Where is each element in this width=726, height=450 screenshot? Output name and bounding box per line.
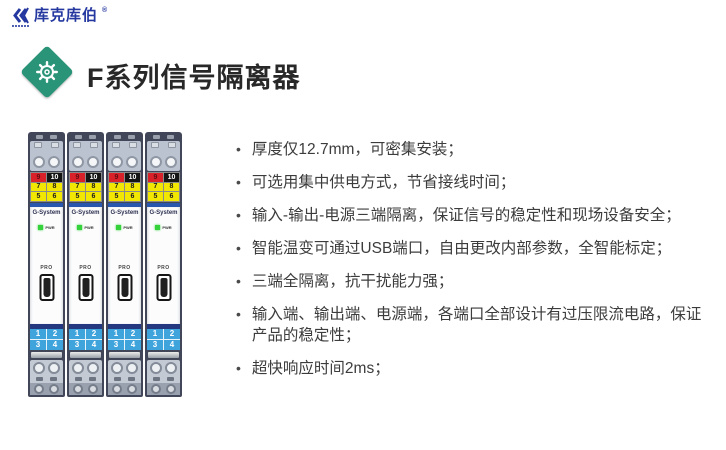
terminal-7: 7: [148, 183, 163, 192]
usb-port-icon: [117, 274, 132, 301]
brand-label: G-System: [108, 210, 141, 216]
screw-icon: [153, 135, 160, 139]
isolator-module: 9 10 7 8 5 6 G-System PWR PRO 1 2: [28, 132, 65, 397]
feature-item: • 超快响应时间2ms；: [236, 358, 714, 379]
screw-slot-icon: [50, 377, 57, 381]
screw-icon: [50, 135, 57, 139]
feature-text: 可选用集中供电方式，节省接线时间；: [252, 172, 516, 193]
terminal-6: 6: [47, 192, 62, 201]
screw-icon: [114, 135, 121, 139]
top-terminal-block: [108, 141, 141, 171]
din-clip-icon: [70, 352, 101, 358]
terminal-10: 10: [86, 173, 101, 182]
power-indicator: PWR: [108, 225, 141, 230]
brand-logo: 库克库伯 ®: [12, 7, 107, 27]
feature-item: • 智能温变可通过USB端口，自由更改内部参数，全智能标定；: [236, 238, 714, 259]
terminal-7: 7: [31, 183, 46, 192]
logo-subtext: [12, 25, 29, 27]
wire-hole-icon: [150, 156, 162, 168]
wire-hole-icon: [165, 362, 177, 374]
brand-label: G-System: [30, 210, 63, 216]
terminal-10: 10: [47, 173, 62, 182]
wire-hole-icon: [166, 384, 176, 394]
terminal-2: 2: [47, 329, 63, 339]
usb-port-icon: [156, 274, 171, 301]
brand-label: G-System: [147, 210, 180, 216]
feature-text: 厚度仅12.7mm，可密集安装；: [252, 139, 463, 160]
bottom-terminal-block: [69, 360, 102, 395]
terminal-3: 3: [108, 340, 124, 350]
pwr-label: PWR: [84, 225, 93, 230]
pro-label: PRO: [30, 265, 63, 271]
terminal-number-grid-top: 9 10 7 8 5 6: [30, 172, 63, 202]
wire-hole-icon: [126, 362, 138, 374]
terminal-9: 9: [148, 173, 163, 182]
terminal-5: 5: [148, 192, 163, 201]
terminal-5: 5: [109, 192, 124, 201]
logo-text: 库克库伯: [34, 7, 98, 24]
registered-mark: ®: [102, 7, 107, 15]
feature-list: • 厚度仅12.7mm，可密集安装； • 可选用集中供电方式，节省接线时间； •…: [236, 139, 714, 391]
bottom-terminal-housing: [145, 351, 182, 397]
screw-icon: [89, 135, 96, 139]
top-terminal-block: [147, 141, 180, 171]
terminal-1: 1: [69, 329, 85, 339]
terminal-9: 9: [109, 173, 124, 182]
wire-hole-icon: [111, 156, 123, 168]
bottom-terminal-block: [147, 360, 180, 395]
wire-hole-icon: [72, 362, 84, 374]
bullet-icon: •: [236, 358, 241, 379]
top-terminal-block: [30, 141, 63, 171]
terminal-number-grid-top: 9 10 7 8 5 6: [108, 172, 141, 202]
feature-text: 三端全隔离，抗干扰能力强；: [252, 271, 454, 292]
terminal-1: 1: [30, 329, 46, 339]
terminal-1: 1: [108, 329, 124, 339]
lower-terminal-row: [147, 383, 180, 395]
bottom-terminal-housing: [67, 351, 104, 397]
power-indicator: PWR: [69, 225, 102, 230]
feature-text: 输入端、输出端、电源端，各端口全部设计有过压限流电路，保证产品的稳定性；: [252, 304, 714, 346]
bullet-icon: •: [236, 238, 241, 259]
slide: 库克库伯 ® F系列信号隔离器: [0, 0, 726, 450]
screw-slot-icon: [153, 377, 160, 381]
bullet-icon: •: [236, 172, 241, 193]
wire-hole-icon: [72, 156, 84, 168]
wire-hole-icon: [127, 384, 137, 394]
bottom-terminal-housing: [28, 351, 65, 397]
terminal-6: 6: [164, 192, 179, 201]
terminal-2: 2: [164, 329, 180, 339]
wire-hole-icon: [88, 384, 98, 394]
terminal-screw-icon: [129, 142, 137, 148]
lower-terminal-row: [30, 383, 63, 395]
feature-item: • 可选用集中供电方式，节省接线时间；: [236, 172, 714, 193]
terminal-number-grid-top: 9 10 7 8 5 6: [147, 172, 180, 202]
terminal-screw-icon: [168, 142, 176, 148]
wire-hole-icon: [33, 156, 45, 168]
wire-hole-icon: [34, 384, 44, 394]
wire-hole-icon: [151, 384, 161, 394]
pro-label: PRO: [147, 265, 180, 271]
module-faceplate: G-System PWR PRO: [147, 207, 180, 325]
wire-hole-icon: [73, 384, 83, 394]
bottom-terminal-block: [108, 360, 141, 395]
din-clip-icon: [31, 352, 62, 358]
terminal-7: 7: [109, 183, 124, 192]
wire-hole-icon: [150, 362, 162, 374]
terminal-screw-icon: [51, 142, 59, 148]
terminal-1: 1: [147, 329, 163, 339]
terminal-4: 4: [86, 340, 102, 350]
screw-icon: [75, 135, 82, 139]
page-title: F系列信号隔离器: [87, 56, 301, 95]
pwr-led-icon: [155, 225, 160, 230]
terminal-number-grid-bottom: 1 2 3 4: [30, 329, 63, 350]
screw-icon: [128, 135, 135, 139]
screw-slot-icon: [128, 377, 135, 381]
terminal-4: 4: [164, 340, 180, 350]
bottom-terminal-housing: [106, 351, 143, 397]
terminal-6: 6: [86, 192, 101, 201]
feature-item: • 输入端、输出端、电源端，各端口全部设计有过压限流电路，保证产品的稳定性；: [236, 304, 714, 346]
wire-hole-icon: [87, 362, 99, 374]
pwr-label: PWR: [45, 225, 54, 230]
terminal-8: 8: [47, 183, 62, 192]
terminal-5: 5: [70, 192, 85, 201]
screw-slot-icon: [114, 377, 121, 381]
usb-port-icon: [78, 274, 93, 301]
terminal-10: 10: [125, 173, 140, 182]
module-faceplate: G-System PWR PRO: [30, 207, 63, 325]
top-screws: [106, 132, 143, 141]
terminal-number-grid-top: 9 10 7 8 5 6: [69, 172, 102, 202]
feature-item: • 三端全隔离，抗干扰能力强；: [236, 271, 714, 292]
title-diamond: [20, 45, 74, 99]
terminal-4: 4: [47, 340, 63, 350]
terminal-4: 4: [125, 340, 141, 350]
terminal-5: 5: [31, 192, 46, 201]
screw-slot-icon: [167, 377, 174, 381]
top-screws: [67, 132, 104, 141]
feature-text: 超快响应时间2ms；: [252, 358, 390, 379]
usb-port-icon: [39, 274, 54, 301]
terminal-number-grid-bottom: 1 2 3 4: [147, 329, 180, 350]
terminal-8: 8: [125, 183, 140, 192]
feature-item: • 厚度仅12.7mm，可密集安装；: [236, 139, 714, 160]
pwr-label: PWR: [123, 225, 132, 230]
pwr-led-icon: [77, 225, 82, 230]
screw-icon: [36, 135, 43, 139]
pro-label: PRO: [108, 265, 141, 271]
bullet-icon: •: [236, 205, 241, 226]
bullet-icon: •: [236, 304, 241, 346]
din-clip-icon: [109, 352, 140, 358]
terminal-8: 8: [86, 183, 101, 192]
terminal-8: 8: [164, 183, 179, 192]
lower-terminal-row: [69, 383, 102, 395]
feature-text: 智能温变可通过USB端口，自由更改内部参数，全智能标定；: [252, 238, 671, 259]
pwr-label: PWR: [162, 225, 171, 230]
wire-hole-icon: [87, 156, 99, 168]
wire-hole-icon: [49, 384, 59, 394]
terminal-screw-icon: [90, 142, 98, 148]
wire-hole-icon: [48, 362, 60, 374]
terminal-number-grid-bottom: 1 2 3 4: [108, 329, 141, 350]
screw-icon: [167, 135, 174, 139]
power-indicator: PWR: [147, 225, 180, 230]
terminal-screw-icon: [151, 142, 159, 148]
isolator-module: 9 10 7 8 5 6 G-System PWR PRO 1 2: [67, 132, 104, 397]
terminal-10: 10: [164, 173, 179, 182]
pwr-led-icon: [38, 225, 43, 230]
terminal-screw-icon: [73, 142, 81, 148]
pwr-led-icon: [116, 225, 121, 230]
terminal-2: 2: [125, 329, 141, 339]
terminal-number-grid-bottom: 1 2 3 4: [69, 329, 102, 350]
bullet-icon: •: [236, 271, 241, 292]
terminal-9: 9: [70, 173, 85, 182]
pro-label: PRO: [69, 265, 102, 271]
power-indicator: PWR: [30, 225, 63, 230]
screw-slot-icon: [75, 377, 82, 381]
wire-hole-icon: [112, 384, 122, 394]
isolator-module: 9 10 7 8 5 6 G-System PWR PRO 1 2: [106, 132, 143, 397]
module-faceplate: G-System PWR PRO: [69, 207, 102, 325]
wire-hole-icon: [111, 362, 123, 374]
lower-terminal-row: [108, 383, 141, 395]
din-clip-icon: [148, 352, 179, 358]
product-image: 9 10 7 8 5 6 G-System PWR PRO 1 2: [28, 132, 182, 397]
wire-hole-icon: [126, 156, 138, 168]
top-screws: [28, 132, 65, 141]
isolator-module: 9 10 7 8 5 6 G-System PWR PRO 1 2: [145, 132, 182, 397]
terminal-7: 7: [70, 183, 85, 192]
brand-label: G-System: [69, 210, 102, 216]
terminal-9: 9: [31, 173, 46, 182]
top-terminal-block: [69, 141, 102, 171]
terminal-3: 3: [147, 340, 163, 350]
wire-hole-icon: [33, 362, 45, 374]
bottom-terminal-block: [30, 360, 63, 395]
terminal-2: 2: [86, 329, 102, 339]
terminal-screw-icon: [34, 142, 42, 148]
terminal-3: 3: [69, 340, 85, 350]
terminal-3: 3: [30, 340, 46, 350]
screw-slot-icon: [89, 377, 96, 381]
feature-text: 输入-输出-电源三端隔离，保证信号的稳定性和现场设备安全；: [252, 205, 681, 226]
terminal-6: 6: [125, 192, 140, 201]
gear-icon: [35, 60, 59, 84]
wire-hole-icon: [165, 156, 177, 168]
screw-slot-icon: [36, 377, 43, 381]
feature-item: • 输入-输出-电源三端隔离，保证信号的稳定性和现场设备安全；: [236, 205, 714, 226]
top-screws: [145, 132, 182, 141]
bullet-icon: •: [236, 139, 241, 160]
terminal-screw-icon: [112, 142, 120, 148]
kuke-logo-icon: [12, 7, 30, 24]
wire-hole-icon: [48, 156, 60, 168]
module-faceplate: G-System PWR PRO: [108, 207, 141, 325]
